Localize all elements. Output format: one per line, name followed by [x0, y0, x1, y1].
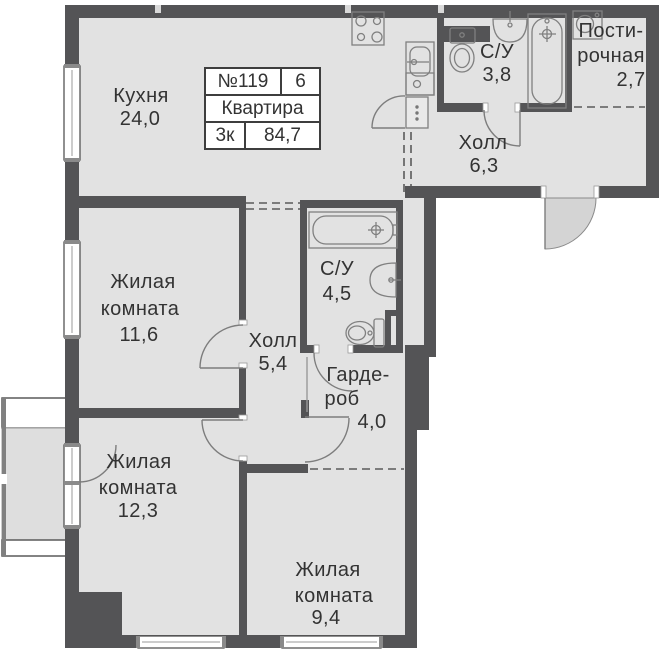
room-label-living3-name1: Жилая — [295, 560, 360, 581]
room-label-living3-area: 9,4 — [311, 608, 340, 629]
room-label-bathroom-large-area: 4,5 — [322, 284, 351, 305]
room-label-living1-name1: Жилая — [110, 272, 175, 293]
living2-window — [136, 636, 226, 648]
living3-window — [280, 636, 383, 648]
apartment-number-row: №119 6 — [206, 69, 319, 94]
room-label-wardrobe-name1: Гарде- — [326, 365, 389, 386]
room-label-hall-inner-name: Холл — [249, 331, 298, 352]
room-label-hall-inner-area: 5,4 — [258, 354, 287, 375]
room-label-living2-name2: комната — [99, 478, 177, 499]
room-label-bathroom-large-name: С/У — [320, 259, 354, 280]
room-label-living3-name2: комната — [295, 586, 373, 607]
balcony-door-window-unit — [64, 443, 80, 529]
structural-column — [79, 592, 122, 635]
room-label-living2-name1: Жилая — [106, 452, 171, 473]
kitchen-cabinet-icon — [406, 97, 428, 128]
room-label-hall-entry-area: 6,3 — [469, 156, 498, 177]
apartment-area-row: 3к 84,7 — [206, 121, 319, 148]
floor-plan: №119 6 Квартира 3к 84,7 Кухня 24,0 С/У 3… — [0, 0, 662, 652]
room-label-laundry-name2: рочная — [577, 46, 645, 67]
room-label-bathroom-small-name: С/У — [480, 42, 514, 63]
living1-window — [64, 240, 80, 339]
room-label-bathroom-small-area: 3,8 — [482, 65, 511, 86]
room-label-kitchen-area: 24,0 — [120, 109, 161, 130]
room-label-living1-name2: комната — [101, 299, 179, 320]
kitchen-window — [64, 64, 80, 162]
room-label-living2-area: 12,3 — [118, 501, 159, 522]
apartment-type-row: Квартира — [206, 94, 319, 121]
apartment-total-area: 84,7 — [246, 123, 319, 148]
room-label-wardrobe-area: 4,0 — [357, 412, 386, 433]
room-label-wardrobe-name2: роб — [325, 389, 360, 410]
room-label-laundry-area: 2,7 — [616, 70, 645, 91]
apartment-info-table: №119 6 Квартира 3к 84,7 — [204, 67, 321, 150]
room-label-kitchen-name: Кухня — [113, 86, 169, 107]
loggia — [1, 398, 66, 556]
room-label-living1-area: 11,6 — [119, 325, 158, 346]
apartment-type-label: Квартира — [206, 96, 319, 121]
entrance-door-swing — [545, 198, 596, 249]
floor-plan-drawing — [0, 0, 662, 652]
apartment-floor: 6 — [282, 69, 319, 94]
room-label-hall-entry-name: Холл — [459, 133, 508, 154]
room-label-laundry-name1: Пости- — [579, 21, 644, 42]
apartment-number: №119 — [206, 69, 282, 94]
apartment-rooms-label: 3к — [206, 123, 246, 148]
